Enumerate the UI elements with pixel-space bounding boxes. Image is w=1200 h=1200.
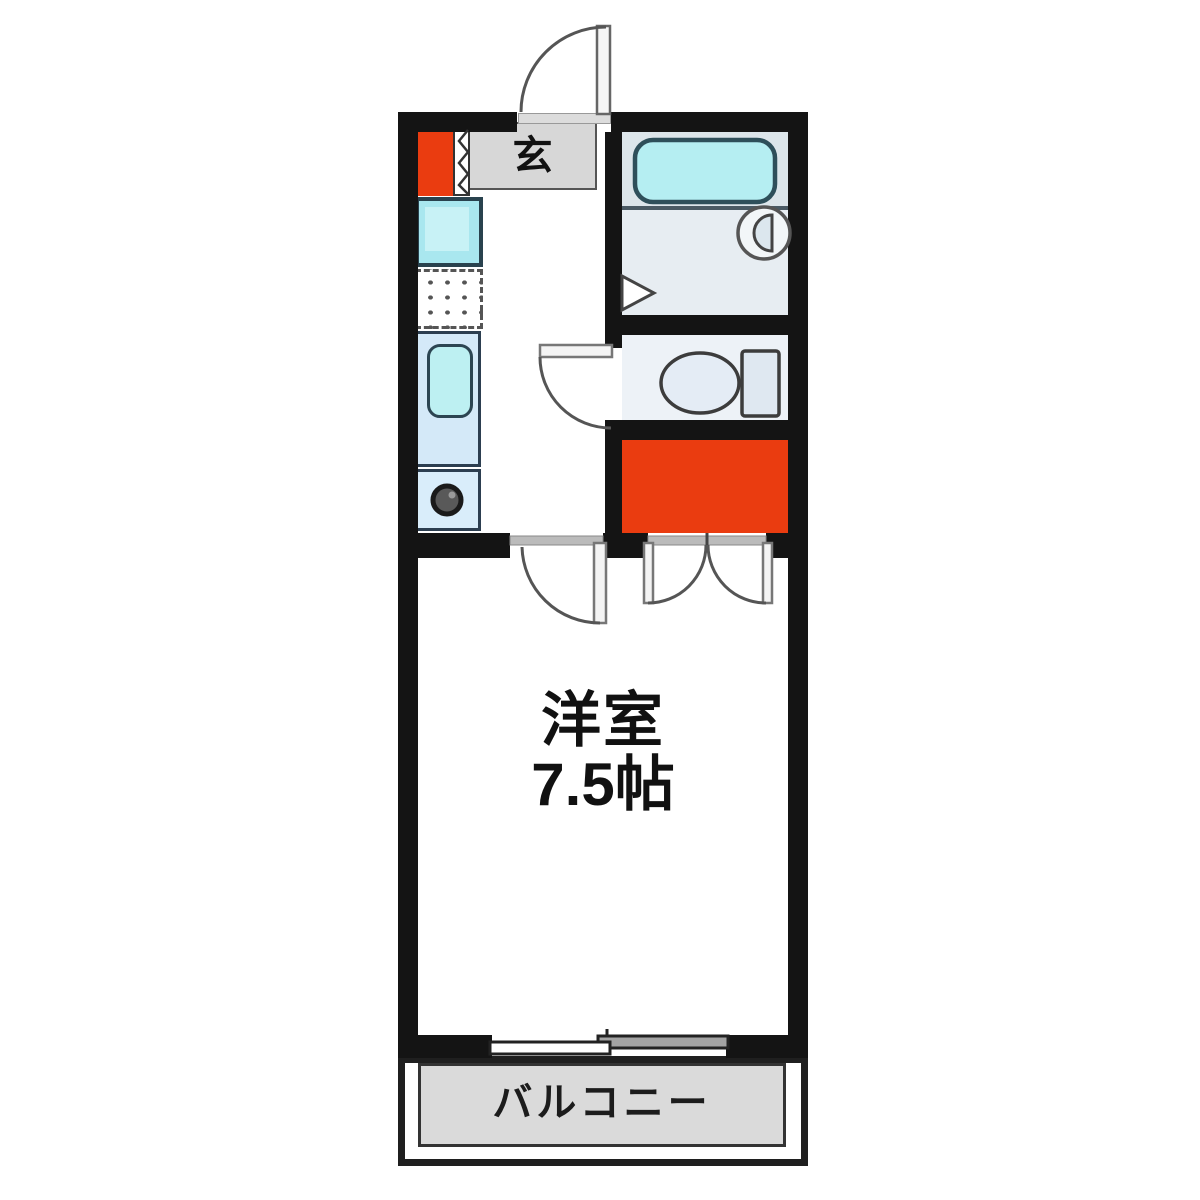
room-door-leaf [594,543,606,623]
toilet-tank [742,351,779,416]
fixtures-layer [0,0,1200,1200]
burner-icon [433,486,461,514]
window-sash-left [490,1042,610,1054]
entrance-label: 玄 [468,134,597,178]
bath-door-triangle-icon [622,276,654,310]
window-sash-right [598,1036,728,1048]
entrance-door-arc [521,27,606,112]
balcony-label: バルコニー [418,1080,786,1126]
room-size-label: 7.5帖 [418,752,788,818]
room-door-arc [522,547,600,623]
burner-highlight-icon [449,492,456,499]
floorplan-canvas: 玄 洋室 7.5帖 バルコニー [0,0,1200,1200]
bathtub [635,140,775,202]
toilet-bowl [661,353,739,413]
shoe-cabinet-zigzag-icon [459,130,468,194]
closet-door-left-arc [648,545,706,603]
closet-door-right-arc [708,545,766,603]
room-name-label: 洋室 [418,688,788,754]
toilet-door-arc [540,357,611,428]
room-door-threshold [510,536,603,545]
toilet-door-leaf [540,345,612,357]
closet-door-left-leaf [644,543,653,603]
closet-door-right-leaf [763,543,772,603]
entrance-door-leaf [597,26,610,114]
